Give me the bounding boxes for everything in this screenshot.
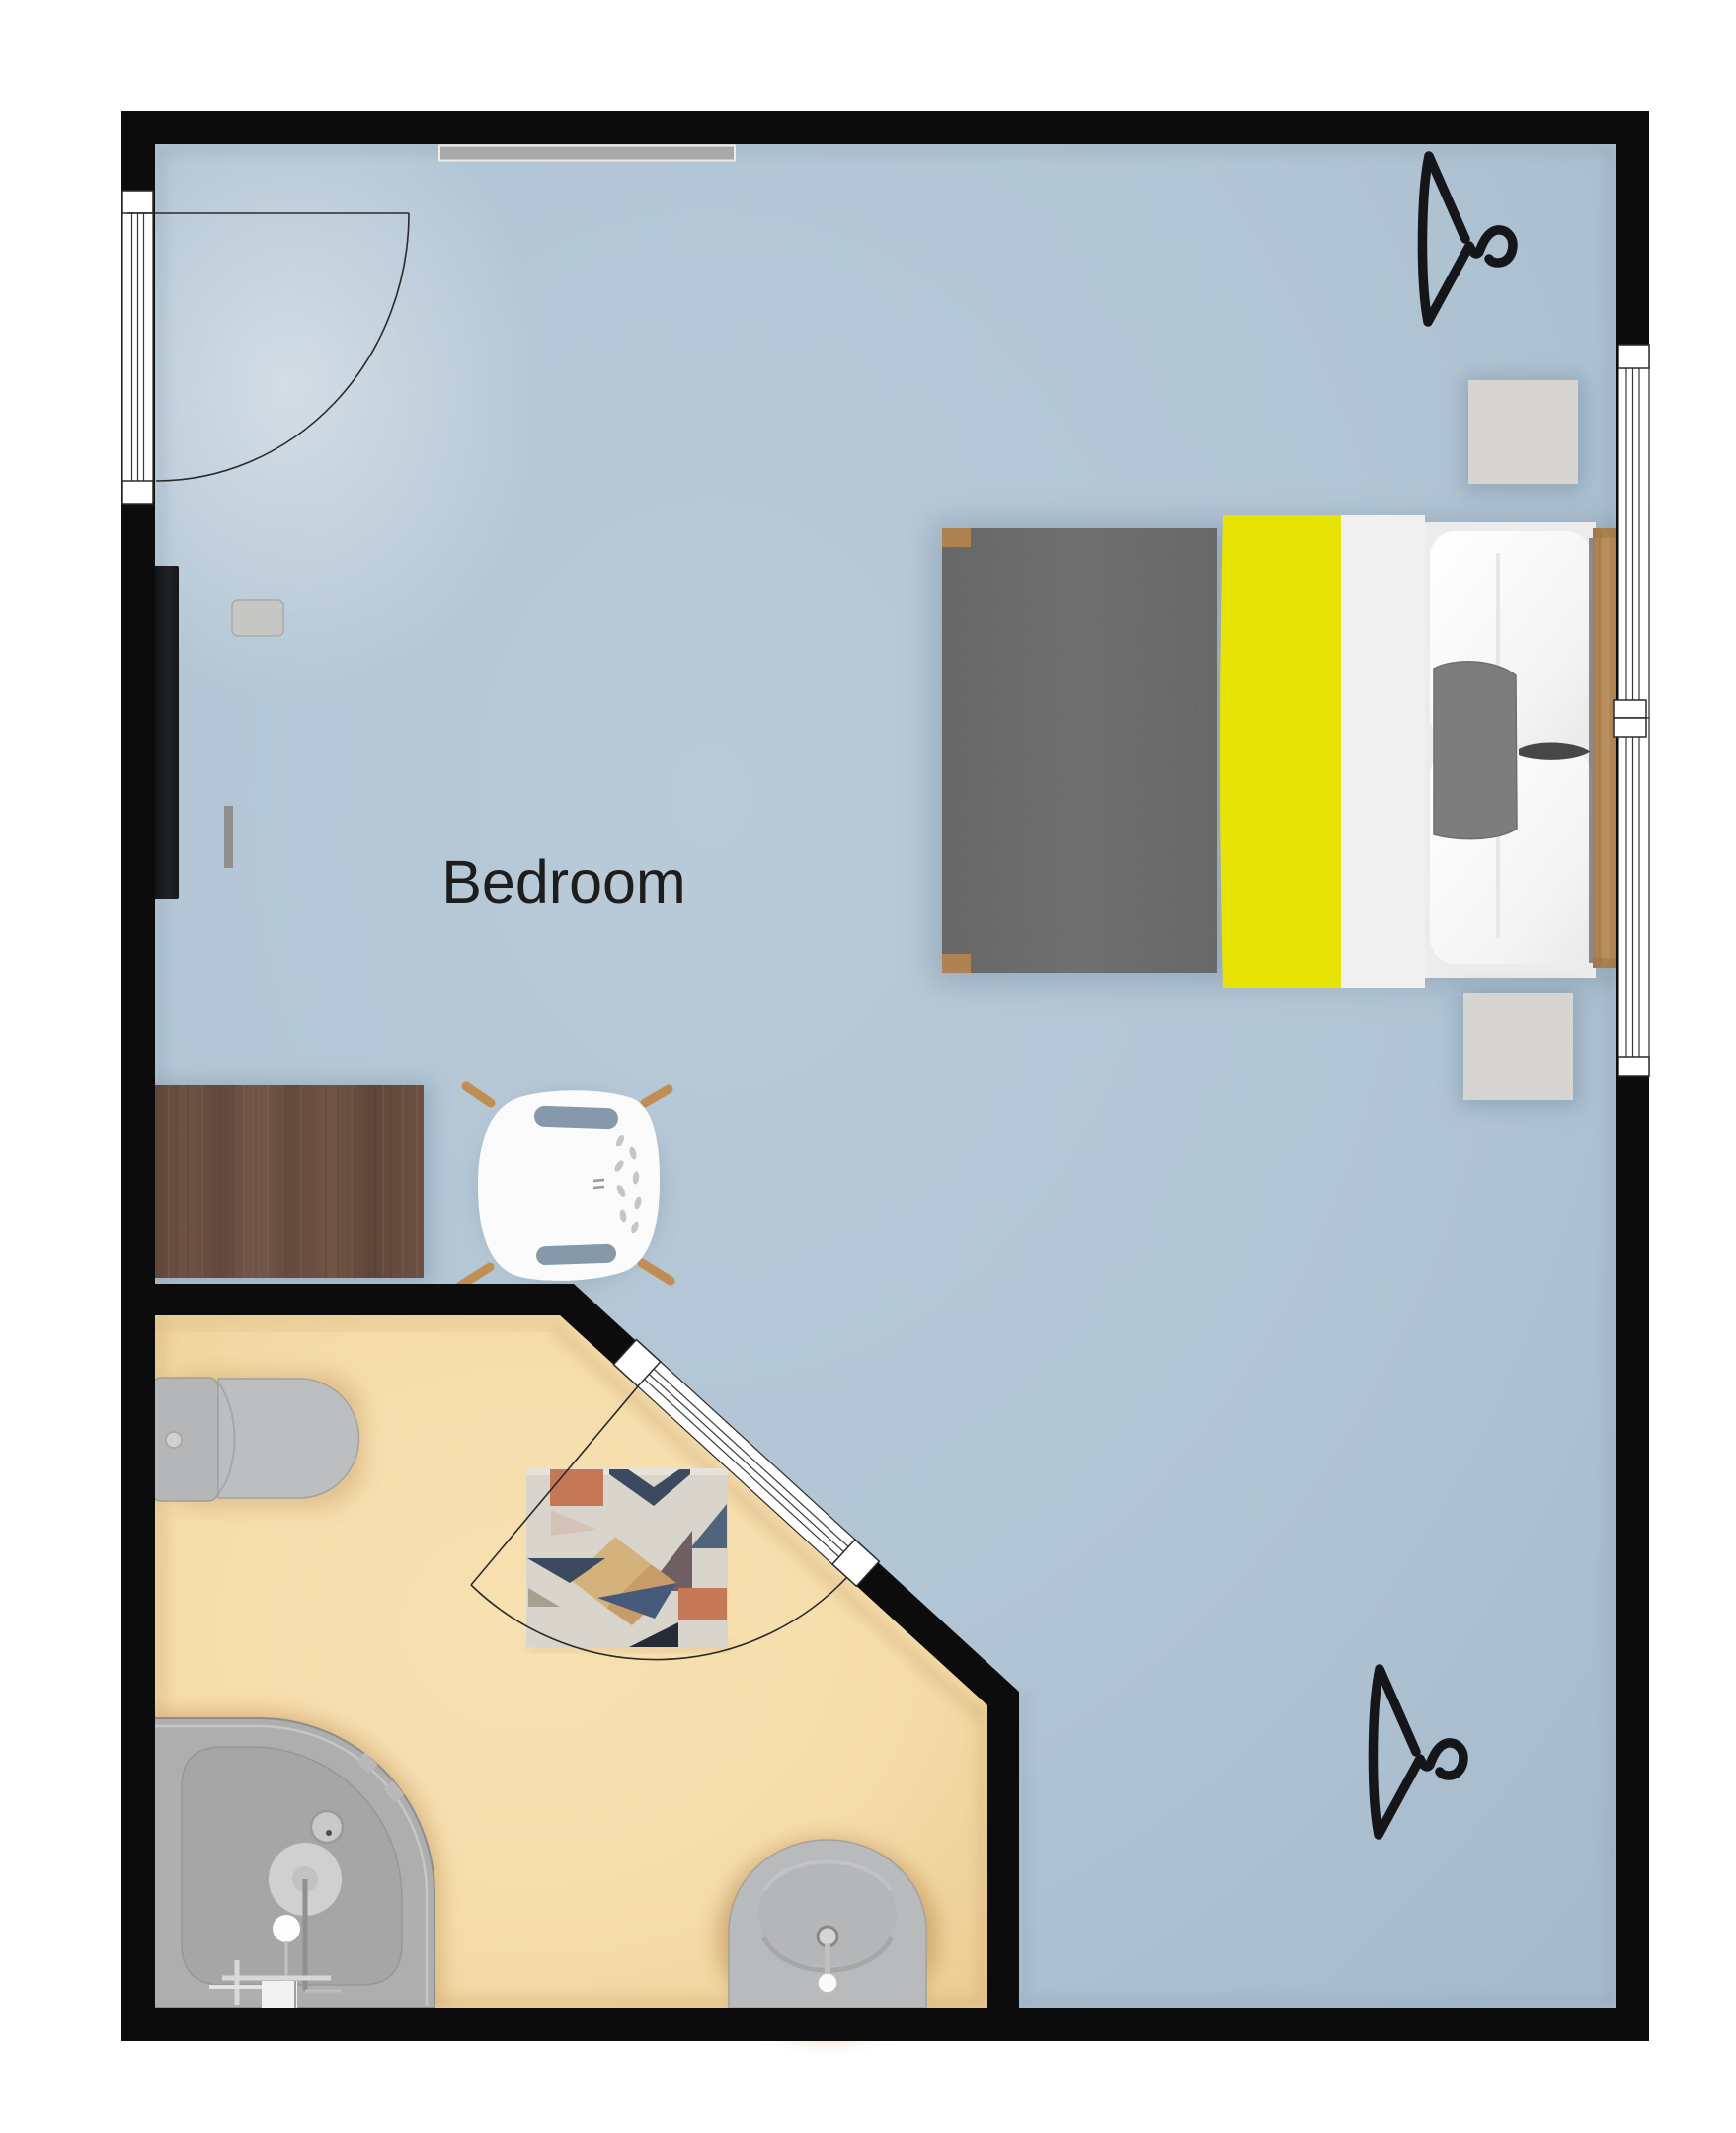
svg-text:Bedroom: Bedroom	[441, 848, 686, 915]
